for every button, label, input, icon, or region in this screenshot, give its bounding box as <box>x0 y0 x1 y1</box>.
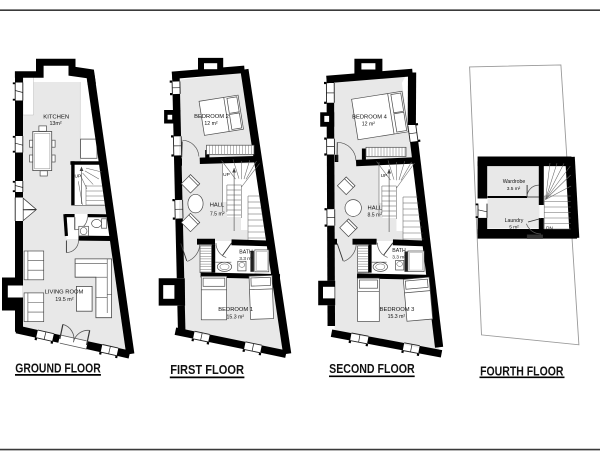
svg-text:FOURTH FLOOR: FOURTH FLOOR <box>480 363 564 378</box>
svg-text:BATH: BATH <box>239 249 253 255</box>
svg-text:UP: UP <box>381 173 388 179</box>
svg-text:19.5 m²: 19.5 m² <box>55 297 73 303</box>
svg-text:BEDROOM 2: BEDROOM 2 <box>194 114 229 120</box>
svg-text:UP: UP <box>223 172 230 178</box>
svg-text:15.3 m²: 15.3 m² <box>227 314 245 320</box>
svg-text:FIRST FLOOR: FIRST FLOOR <box>170 362 244 377</box>
svg-text:3.5 m²: 3.5 m² <box>507 186 521 192</box>
svg-text:3.3 m²: 3.3 m² <box>392 255 406 261</box>
svg-text:Wardrobe: Wardrobe <box>503 179 526 185</box>
svg-text:12 m²: 12 m² <box>204 121 218 127</box>
svg-text:DN: DN <box>546 225 553 230</box>
svg-text:KITCHEN: KITCHEN <box>43 115 69 121</box>
svg-text:SECOND FLOOR: SECOND FLOOR <box>329 361 415 376</box>
svg-text:8.5 m²: 8.5 m² <box>367 212 382 218</box>
svg-text:3.3 m²: 3.3 m² <box>239 256 253 262</box>
svg-text:UP: UP <box>74 174 81 180</box>
svg-text:Laundry: Laundry <box>505 218 524 224</box>
svg-text:5 m²: 5 m² <box>509 225 519 231</box>
svg-text:GROUND FLOOR: GROUND FLOOR <box>15 360 101 375</box>
svg-text:7.5 m²: 7.5 m² <box>210 211 225 217</box>
svg-text:HALL: HALL <box>210 202 225 208</box>
svg-text:12 m²: 12 m² <box>362 122 376 128</box>
svg-text:BEDROOM 3: BEDROOM 3 <box>380 307 415 313</box>
svg-text:LIVING ROOM: LIVING ROOM <box>45 289 84 295</box>
svg-text:BEDROOM 4: BEDROOM 4 <box>352 114 388 120</box>
svg-text:15.3 m²: 15.3 m² <box>388 314 406 320</box>
svg-text:BATH: BATH <box>392 248 406 254</box>
svg-text:13m²: 13m² <box>49 121 61 127</box>
svg-text:HALL: HALL <box>368 205 383 211</box>
svg-text:BEDROOM 1: BEDROOM 1 <box>218 307 253 313</box>
